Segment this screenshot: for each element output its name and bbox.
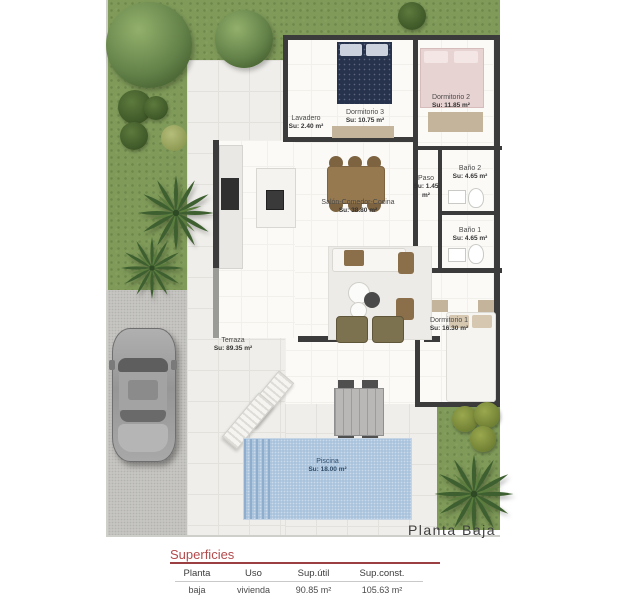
car-mirror-right: [171, 360, 177, 370]
room-name: Dormitorio 1: [418, 316, 480, 325]
table-header-row: Planta Uso Sup.útil Sup.const.: [168, 568, 418, 579]
car-trunk: [118, 424, 168, 452]
wall-bano2-bano1: [440, 211, 500, 215]
label-dormitorio1: Dormitorio 1 Su: 16.30 m²: [418, 316, 480, 334]
wardrobe-dorm2: [428, 112, 483, 132]
fence-left: [106, 0, 108, 537]
cell-uso: vivienda: [226, 585, 281, 595]
cell-planta: baja: [168, 585, 226, 595]
car-windshield: [118, 358, 168, 372]
plan-caption: Planta Baja: [402, 522, 502, 538]
patio-table: [334, 388, 384, 436]
wall-top: [283, 35, 500, 40]
pool-label: Piscina Su: 18.00 m²: [244, 457, 411, 475]
coffee-table-2: [364, 292, 380, 308]
label-salon: Salón-Comedor-Cocina Su: 38.80 m²: [300, 198, 416, 216]
side-chair-1: [398, 252, 414, 274]
room-area: Su: 11.85 m²: [420, 102, 482, 110]
wall-kitchen-lower: [213, 268, 219, 338]
bush-pair-b: [144, 96, 168, 120]
room-name: Baño 2: [442, 164, 498, 173]
tree-medium: [215, 10, 273, 68]
room-name: Dormitorio 3: [334, 108, 396, 117]
wall-dorm3-dorm2: [413, 35, 418, 142]
floor-plan-page: Piscina Su: 18.00 m²: [0, 0, 636, 600]
nightstand-dorm1-left: [432, 300, 448, 312]
car-sunroof: [128, 380, 158, 400]
room-name: Baño 1: [442, 226, 498, 235]
room-area: Su: 4.65 m²: [442, 235, 498, 243]
island-sink: [266, 190, 284, 210]
header-rule: [175, 581, 423, 582]
room-area: Su: 38.80 m²: [300, 207, 416, 215]
toilet-bano1: [468, 244, 484, 264]
sink-bano1: [448, 248, 466, 262]
bush-olive-2: [474, 402, 500, 428]
pillow-dorm2-right: [454, 51, 478, 63]
label-bano1: Baño 1 Su: 4.65 m²: [442, 226, 498, 244]
label-paso: Paso Su: 1.45 m²: [411, 174, 441, 200]
nightstand-dorm1-right: [478, 300, 494, 312]
room-name: Terraza: [204, 336, 262, 345]
label-dormitorio3: Dormitorio 3 Su: 10.75 m²: [334, 108, 396, 126]
armchair-1: [336, 316, 368, 343]
header-planta: Planta: [168, 568, 226, 579]
pillow-dorm3-left: [340, 44, 362, 56]
room-area: Su: 2.40 m²: [283, 123, 329, 131]
header-uso: Uso: [226, 568, 281, 579]
room-name: Paso: [411, 174, 441, 183]
palm-tree-left-2: [119, 235, 185, 301]
toilet-bano2: [468, 188, 484, 208]
pool: Piscina Su: 18.00 m²: [243, 438, 412, 520]
label-lavadero: Lavadero Su: 2.40 m²: [283, 114, 329, 132]
room-name: Dormitorio 2: [420, 93, 482, 102]
wall-dorm2-bottom: [413, 146, 502, 150]
kitchen-cooktop: [221, 178, 239, 210]
header-sup-const: Sup.const.: [346, 568, 418, 579]
room-area: Su: 4.65 m²: [442, 173, 498, 181]
surfaces-title: Superficies: [170, 547, 234, 562]
car-rear-window: [120, 410, 166, 422]
room-name: Piscina: [244, 457, 411, 466]
label-dormitorio2: Dormitorio 2 Su: 11.85 m²: [420, 93, 482, 111]
room-area: Su: 89.35 m²: [204, 345, 262, 353]
cell-sup-const: 105.63 m²: [346, 585, 418, 595]
label-bano2: Baño 2 Su: 4.65 m²: [442, 164, 498, 182]
site-plan: Piscina Su: 18.00 m²: [106, 0, 502, 540]
bush-lower: [120, 122, 148, 150]
pillow-dorm2-left: [424, 51, 448, 63]
bush-top-right: [398, 2, 426, 30]
wardrobe-dorm3: [332, 126, 394, 138]
bush-light-green: [161, 125, 187, 151]
sink-bano2: [448, 190, 466, 204]
pillow-dorm3-right: [366, 44, 388, 56]
cell-sup-util: 90.85 m²: [281, 585, 346, 595]
room-area: Su: 10.75 m²: [334, 117, 396, 125]
car-mirror-left: [109, 360, 115, 370]
label-terraza: Terraza Su: 89.35 m²: [204, 336, 262, 354]
room-name: Lavadero: [283, 114, 329, 123]
sofa-throw: [344, 250, 364, 266]
header-sup-util: Sup.útil: [281, 568, 346, 579]
car: [112, 328, 174, 460]
title-rule: [170, 562, 440, 564]
table-data-row: baja vivienda 90.85 m² 105.63 m²: [168, 585, 418, 595]
pool-steps: [244, 439, 271, 519]
room-name: Salón-Comedor-Cocina: [300, 198, 416, 207]
armchair-2: [372, 316, 404, 343]
room-area: Su: 16.30 m²: [418, 325, 480, 333]
room-area: Su: 18.00 m²: [244, 466, 411, 474]
tree-large: [106, 2, 192, 88]
bush-olive-3: [470, 426, 496, 452]
